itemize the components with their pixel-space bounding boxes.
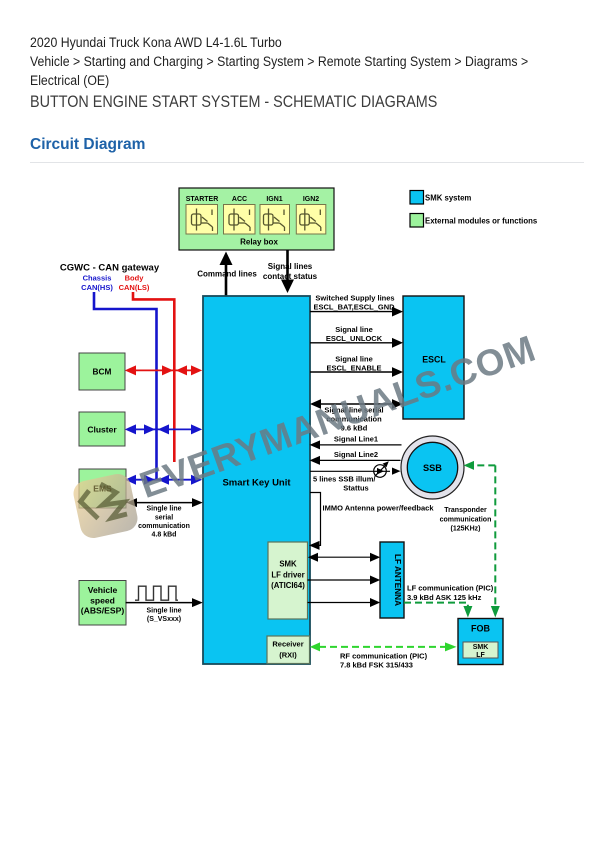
svg-text:Command lines: Command lines bbox=[197, 270, 257, 279]
svg-text:ACC: ACC bbox=[232, 196, 247, 203]
svg-text:speed: speed bbox=[90, 595, 115, 605]
svg-text:3.9 kBd ASK 125 kHz: 3.9 kBd ASK 125 kHz bbox=[407, 593, 482, 602]
svg-text:Vehicle: Vehicle bbox=[88, 585, 118, 595]
svg-text:(ABS/ESP): (ABS/ESP) bbox=[81, 605, 125, 615]
svg-text:CAN(LS): CAN(LS) bbox=[119, 283, 150, 292]
svg-text:ESCL_BAT,ESCL_GND: ESCL_BAT,ESCL_GND bbox=[313, 303, 395, 312]
svg-text:4.8 kBd: 4.8 kBd bbox=[152, 531, 177, 538]
svg-text:Signal lines: Signal lines bbox=[268, 262, 313, 271]
svg-text:LF ANTENNA: LF ANTENNA bbox=[393, 554, 402, 606]
svg-text:(125KHz): (125KHz) bbox=[451, 526, 481, 533]
svg-text:SSB: SSB bbox=[423, 463, 442, 473]
svg-text:FOB: FOB bbox=[471, 624, 490, 634]
svg-text:Cluster: Cluster bbox=[87, 425, 117, 435]
svg-text:Stattus: Stattus bbox=[343, 484, 368, 493]
svg-text:External modules or functions: External modules or functions bbox=[425, 217, 538, 226]
svg-text:Chassis: Chassis bbox=[83, 274, 112, 283]
svg-text:LF communication (PIC): LF communication (PIC) bbox=[407, 584, 494, 593]
svg-text:IGN1: IGN1 bbox=[266, 196, 282, 203]
svg-text:Signal Line2: Signal Line2 bbox=[334, 450, 378, 459]
svg-text:Signal line: Signal line bbox=[335, 355, 373, 364]
svg-text:communication: communication bbox=[440, 516, 492, 523]
svg-text:Switched Supply lines: Switched Supply lines bbox=[315, 294, 394, 303]
svg-text:(S_VSxxx): (S_VSxxx) bbox=[147, 616, 181, 623]
svg-text:IGN2: IGN2 bbox=[303, 196, 319, 203]
svg-text:Transponder: Transponder bbox=[444, 507, 487, 514]
svg-text:RF communication (PIC): RF communication (PIC) bbox=[340, 651, 428, 660]
svg-text:SMK system: SMK system bbox=[425, 194, 471, 203]
svg-text:CAN(HS): CAN(HS) bbox=[81, 283, 113, 292]
svg-text:LF driver: LF driver bbox=[271, 571, 304, 580]
svg-text:contact status: contact status bbox=[263, 272, 318, 281]
svg-text:communication: communication bbox=[138, 523, 190, 530]
svg-text:5 lines SSB illum/: 5 lines SSB illum/ bbox=[313, 475, 376, 484]
svg-text:Receiver: Receiver bbox=[272, 640, 303, 649]
svg-text:EMS: EMS bbox=[93, 484, 112, 494]
svg-text:Smart Key Unit: Smart Key Unit bbox=[222, 478, 291, 489]
svg-text:Single line: Single line bbox=[146, 506, 181, 513]
svg-text:ESCL_ENABLE: ESCL_ENABLE bbox=[326, 364, 381, 373]
svg-text:Single line: Single line bbox=[146, 608, 181, 615]
svg-text:BCM: BCM bbox=[93, 367, 112, 377]
svg-text:7.8 kBd FSK 315/433: 7.8 kBd FSK 315/433 bbox=[340, 661, 413, 670]
svg-text:LF: LF bbox=[476, 652, 485, 659]
svg-text:IMMO Antenna power/feedback: IMMO Antenna power/feedback bbox=[323, 504, 435, 513]
svg-text:Relay box: Relay box bbox=[240, 238, 278, 247]
svg-text:(ATICI64): (ATICI64) bbox=[271, 581, 305, 590]
svg-text:ESCL_UNLOCK: ESCL_UNLOCK bbox=[326, 334, 383, 343]
svg-text:STARTER: STARTER bbox=[186, 196, 219, 203]
svg-text:SMK: SMK bbox=[279, 560, 297, 569]
svg-text:(RXI): (RXI) bbox=[279, 651, 297, 660]
svg-text:Signal line: Signal line bbox=[335, 325, 373, 334]
svg-text:serial: serial bbox=[155, 514, 173, 521]
svg-text:SMK: SMK bbox=[473, 644, 489, 651]
svg-text:CGWC - CAN gateway: CGWC - CAN gateway bbox=[60, 263, 160, 274]
svg-text:Body: Body bbox=[125, 274, 145, 283]
